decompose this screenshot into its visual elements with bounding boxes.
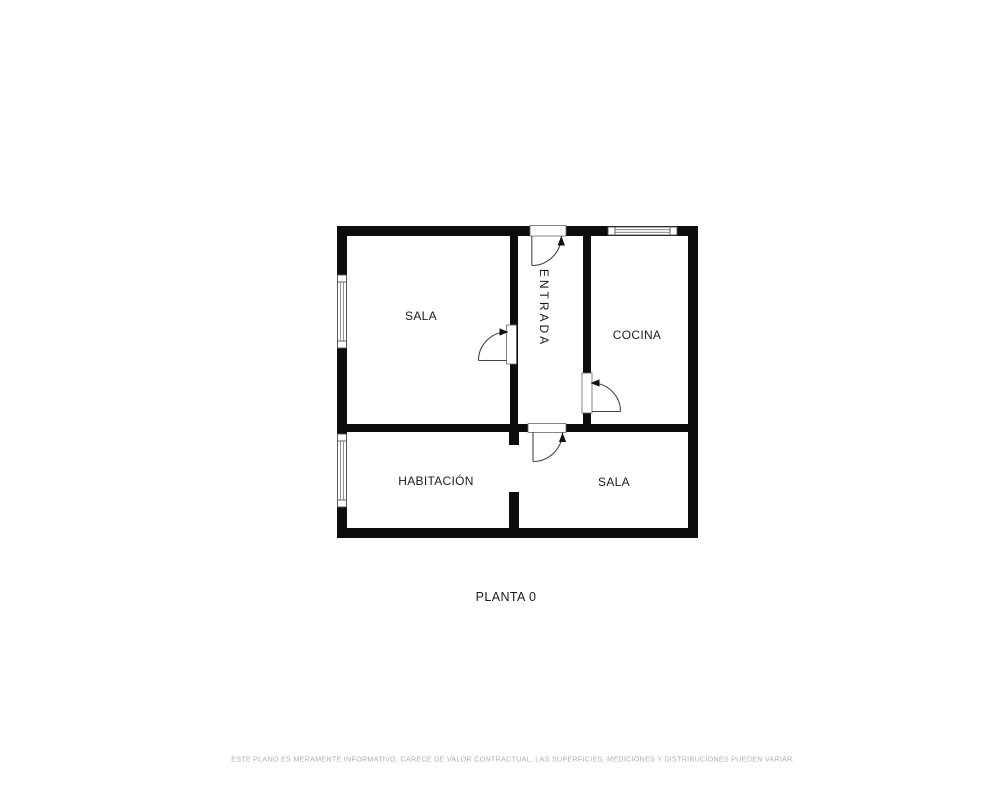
floorplan-drawing bbox=[0, 0, 1000, 800]
door-arrow-entrada-bottom bbox=[559, 433, 566, 443]
door-threshold-cocina bbox=[582, 373, 592, 413]
door-arc-entrada-top bbox=[532, 236, 562, 266]
room-label-cocina: COCINA bbox=[613, 329, 661, 341]
wall-middle-horizontal bbox=[337, 424, 698, 432]
wall-habitacion-sala-stub-bottom bbox=[509, 492, 519, 528]
outer-wall-right bbox=[688, 226, 698, 538]
room-label-sala-bottom: SALA bbox=[598, 476, 630, 488]
door-arc-sala bbox=[479, 332, 508, 361]
floorplan-page: SALA ENTRADA COCINA HABITACIÓN SALA PLAN… bbox=[0, 0, 1000, 800]
disclaimer-text: ESTE PLANO ES MERAMENTE INFORMATIVO, CAR… bbox=[231, 755, 795, 764]
floor-title: PLANTA 0 bbox=[476, 590, 537, 604]
walls bbox=[337, 226, 698, 538]
room-label-habitacion: HABITACIÓN bbox=[398, 475, 473, 487]
door-threshold-sala bbox=[507, 325, 517, 364]
door-arc-cocina bbox=[592, 383, 621, 412]
outer-wall-bottom bbox=[337, 528, 698, 538]
door-arc-entrada-bottom bbox=[533, 432, 563, 462]
window-sala-left bbox=[338, 275, 347, 348]
room-label-sala-top: SALA bbox=[405, 310, 437, 322]
window-habitacion-left bbox=[338, 434, 347, 507]
door-threshold-entrada-top bbox=[530, 226, 566, 237]
windows bbox=[338, 227, 678, 507]
window-cocina-top bbox=[608, 227, 677, 235]
room-label-entrada: ENTRADA bbox=[538, 269, 550, 347]
door-threshold-entrada-bottom bbox=[528, 424, 566, 433]
door-arrow-entrada-top bbox=[558, 236, 565, 246]
wall-habitacion-sala-stub-top bbox=[509, 432, 519, 445]
